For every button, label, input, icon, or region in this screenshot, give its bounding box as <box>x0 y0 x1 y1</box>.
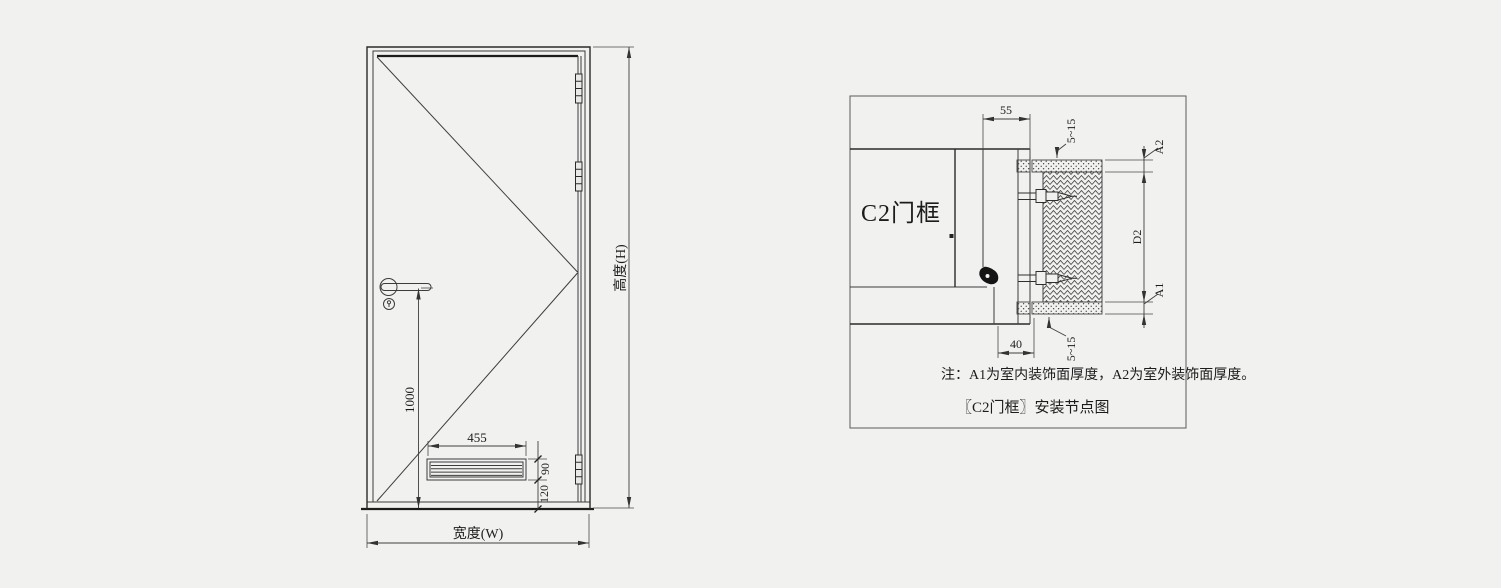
dim-text-gap-bottom: 5~15 <box>1064 337 1078 362</box>
door-swing-diagonal-top <box>377 57 578 272</box>
frame-label: C2门框 <box>861 200 941 227</box>
dim-text-gap-top: 5~15 <box>1064 119 1078 144</box>
dim-door-height: 高度(H) <box>593 47 634 508</box>
dim-gap-bottom: 5~15 <box>1049 317 1078 361</box>
dim-text-a2: A2 <box>1152 140 1166 155</box>
dim-handle-height: 1000 <box>402 288 433 508</box>
frame-detail-drawing: C2门框 <box>850 96 1255 428</box>
detail-note: 注：A1为室内装饰面厚度，A2为室外装饰面厚度。 <box>941 366 1255 383</box>
handle-rosette <box>380 279 397 296</box>
dim-wall-chain: A2 D2 A1 <box>1105 140 1166 328</box>
dim-text-width: 宽度(W) <box>453 525 504 542</box>
louver-inner <box>430 462 523 477</box>
dim-louver-width: 455 <box>428 430 526 456</box>
cad-drawing: 1000 455 90 120 宽度(W) <box>0 0 1501 588</box>
weld-mark <box>950 234 954 238</box>
outdoor-finish-layer <box>1032 160 1102 172</box>
dim-text-120: 120 <box>537 485 551 503</box>
dim-text-a1: A1 <box>1152 283 1166 298</box>
dim-door-width: 宽度(W) <box>367 514 589 548</box>
dim-text-1000: 1000 <box>402 387 417 413</box>
dim-text-55: 55 <box>1000 103 1012 117</box>
anchor-plate-bottom <box>1017 302 1030 314</box>
dim-text-d2: D2 <box>1130 230 1144 245</box>
seal-hole <box>986 274 990 278</box>
door-handle <box>380 279 431 310</box>
door-elevation-drawing: 1000 455 90 120 宽度(W) <box>361 47 634 548</box>
dim-gap-top: 5~15 <box>1057 119 1078 158</box>
dim-text-40: 40 <box>1010 337 1022 351</box>
keyhole-icon <box>387 301 390 304</box>
dim-text-height: 高度(H) <box>612 244 629 292</box>
handle-lever <box>381 284 431 291</box>
anchor-plate-top <box>1017 160 1030 172</box>
frame-profile <box>850 149 1030 324</box>
louver-vent <box>427 459 526 480</box>
cad-drawing-canvas: 1000 455 90 120 宽度(W) <box>0 0 1501 588</box>
indoor-finish-layer <box>1032 302 1102 314</box>
dim-text-455: 455 <box>467 430 487 445</box>
dim-text-90: 90 <box>538 463 552 475</box>
detail-caption: 〖C2门框〗安装节点图 <box>957 399 1110 416</box>
